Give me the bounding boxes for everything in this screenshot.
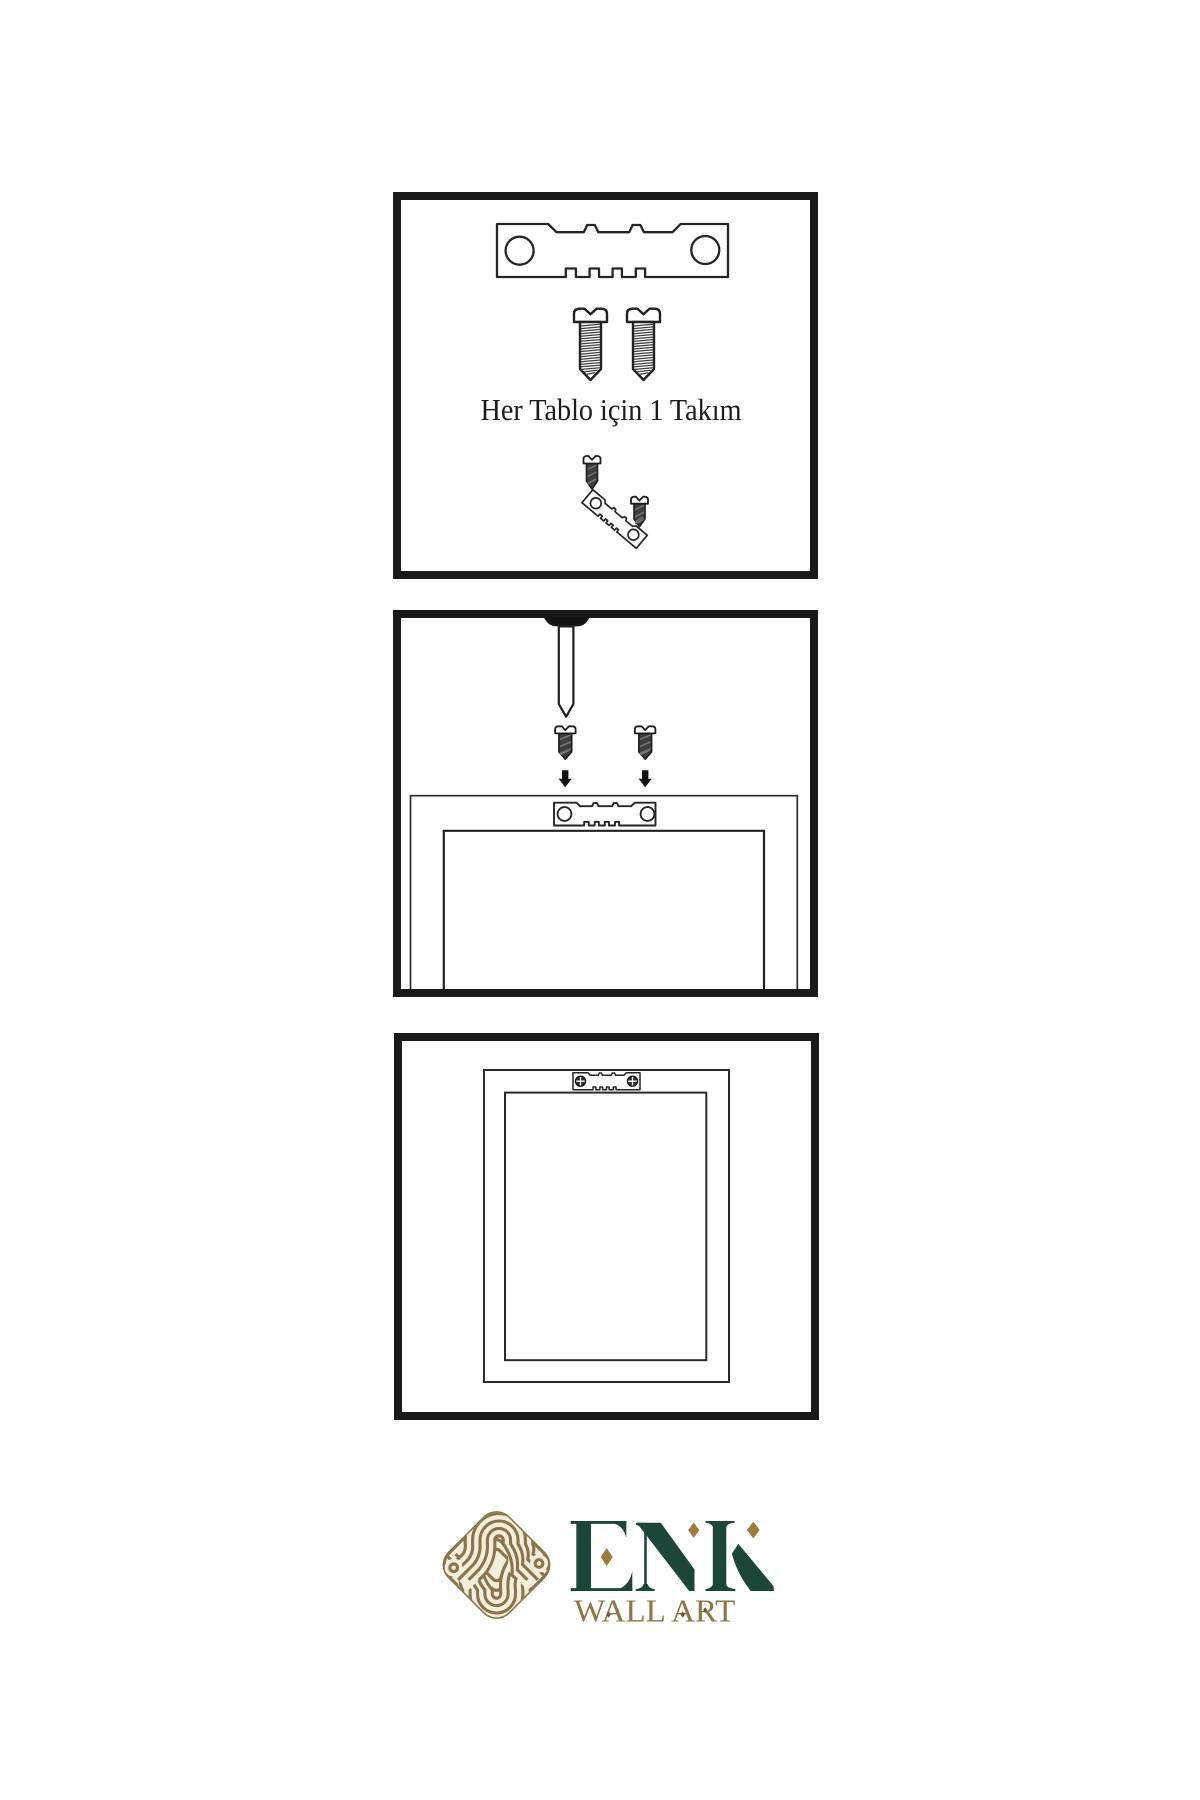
svg-text:WALL ART: WALL ART (574, 1593, 735, 1628)
svg-text:Her Tablo için 1 Takım: Her Tablo için 1 Takım (481, 392, 742, 427)
